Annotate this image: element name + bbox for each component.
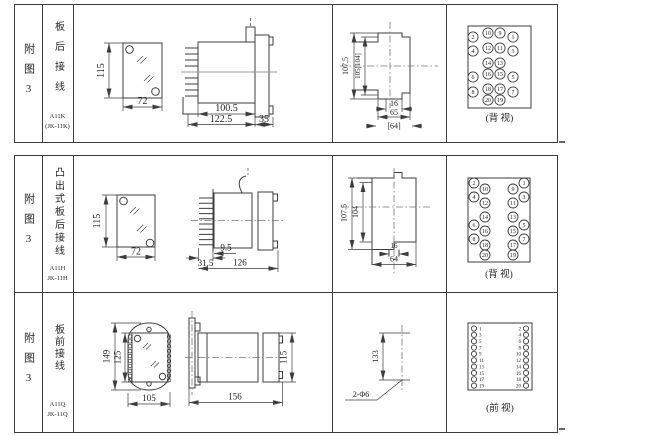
hole-spec-label: 2-Φ6 [353, 390, 370, 399]
dim-width: 105 [142, 393, 156, 403]
row1-front-view: 115 72 [96, 43, 162, 111]
row1-panel-cutout: 107.5 105[104] 16 65 [64] [332, 4, 446, 143]
svg-text:9: 9 [479, 353, 482, 358]
dim-inner-height: 104 [351, 206, 360, 218]
dim-height: 115 [279, 350, 289, 364]
svg-text:1: 1 [512, 35, 515, 41]
svg-text:20: 20 [516, 384, 522, 389]
model-cell-row1: A11K (JK-11K) [42, 112, 73, 132]
hatch-mark [143, 343, 159, 368]
wiring-type-label: 凸出式板后接线 [53, 167, 63, 258]
figure-label: 附图3 [23, 43, 34, 104]
svg-text:9: 9 [512, 187, 515, 193]
wiring-type-label: 板前接线 [53, 324, 63, 372]
svg-text:12: 12 [485, 46, 491, 52]
dim-slot-width: 16 [390, 99, 398, 108]
scan-artifact [559, 141, 565, 143]
terminal-circles: 2 10 9 1 4 12 11 3 14 13 6 16 15 5 8 18 … [468, 28, 518, 105]
svg-text:18: 18 [482, 243, 488, 249]
svg-text:15: 15 [479, 372, 485, 377]
dim-hole-spacing: 133 [370, 350, 380, 363]
dim-width-alt: [64] [387, 122, 401, 131]
view-label: (背 视) [485, 268, 513, 280]
dim-slot-width: 16 [391, 242, 399, 250]
svg-text:6: 6 [472, 75, 475, 81]
svg-text:8: 8 [473, 237, 476, 243]
figure-cell-row3: 附图3 [14, 292, 42, 433]
row2-terminal-diagram: 2 10 4 12 14 6 16 8 18 20 1 9 3 11 13 5 … [446, 155, 558, 292]
dim-width: 72 [131, 247, 141, 258]
svg-text:16: 16 [485, 72, 491, 78]
row2-panel-cutout: 107.5 104 16 64 [332, 155, 446, 292]
dim-width: 65 [390, 108, 398, 117]
terminal-circles: 2 10 4 12 14 6 16 8 18 20 1 9 3 11 13 5 … [469, 178, 529, 260]
dim-outer-height: 107.5 [341, 57, 350, 75]
svg-text:16: 16 [516, 372, 522, 377]
svg-text:12: 12 [516, 359, 522, 364]
svg-text:11: 11 [510, 201, 516, 207]
row3-drawings: 149 125 105 156 115 [73, 292, 332, 433]
row2-front-view: 115 72 [92, 195, 155, 261]
svg-text:12: 12 [482, 201, 488, 207]
model-code-alt: JK-11Q [42, 410, 73, 420]
wiring-type-cell-row2: 凸出式板后接线 [42, 160, 73, 265]
dim-total-length: 156 [228, 392, 242, 402]
svg-text:19: 19 [479, 384, 485, 389]
hatch-mark [137, 56, 154, 83]
hatch-mark [130, 207, 147, 233]
svg-text:6: 6 [519, 340, 522, 345]
dim-total-length: 126 [233, 258, 247, 268]
dim-inner-height: 105[104] [354, 53, 362, 79]
svg-text:19: 19 [510, 253, 516, 259]
model-code: A11H [42, 264, 73, 274]
model-code-alt: (JK-11K) [42, 122, 73, 132]
svg-text:2: 2 [472, 35, 475, 41]
scan-artifact [559, 428, 565, 430]
model-cell-row2: A11H JK-11H [42, 264, 73, 284]
svg-text:15: 15 [497, 72, 503, 78]
row1-side-view: 100.5 122.5 35 [181, 18, 277, 127]
dim-inner-height: 125 [113, 350, 123, 364]
svg-text:10: 10 [482, 187, 488, 193]
dim-total-length: 122.5 [210, 114, 233, 125]
svg-text:2: 2 [473, 181, 476, 187]
model-cell-row3: A11Q JK-11Q [42, 400, 73, 420]
terminal-screws [128, 335, 170, 382]
row2-side-view: 31.5 9.5 126 [186, 168, 283, 272]
row1-terminal-diagram: 2 10 9 1 4 12 11 3 14 13 6 16 15 5 8 18 … [446, 4, 558, 143]
figure-cell-row1: 附图3 [14, 4, 42, 143]
svg-text:8: 8 [519, 346, 522, 351]
svg-text:4: 4 [472, 49, 475, 55]
svg-text:6: 6 [473, 223, 476, 229]
svg-text:15: 15 [510, 229, 516, 235]
svg-text:9: 9 [499, 31, 502, 37]
svg-text:14: 14 [485, 61, 491, 67]
model-code-alt: JK-11H [42, 274, 73, 284]
row3-drilling-plan: 133 2-Φ6 [332, 292, 446, 433]
row1-drawings: 115 72 100.5 122.5 35 [73, 4, 332, 143]
svg-text:10: 10 [485, 31, 491, 37]
row3-front-view: 149 125 105 [102, 323, 171, 407]
svg-text:13: 13 [479, 365, 485, 370]
svg-text:13: 13 [510, 215, 516, 221]
svg-text:1: 1 [479, 327, 482, 332]
svg-text:19: 19 [497, 98, 503, 104]
svg-text:3: 3 [523, 195, 526, 201]
dim-height: 115 [96, 63, 107, 78]
svg-text:7: 7 [479, 346, 482, 351]
wiring-type-label: 板后接线 [53, 21, 63, 101]
dim-outer-height: 107.5 [340, 204, 349, 222]
svg-text:7: 7 [523, 237, 526, 243]
row3-side-view: 156 115 [185, 311, 296, 406]
svg-text:18: 18 [516, 378, 522, 383]
dim-width: 64 [390, 255, 398, 264]
svg-text:8: 8 [472, 90, 475, 96]
svg-text:5: 5 [523, 223, 526, 229]
figure-label: 附图3 [23, 332, 34, 393]
wiring-type-cell-row1: 板后接线 [42, 12, 73, 110]
dim-body-length: 100.5 [215, 103, 238, 114]
svg-text:13: 13 [497, 61, 503, 67]
svg-text:3: 3 [479, 334, 482, 339]
figure-label: 附图3 [23, 193, 34, 254]
svg-text:10: 10 [516, 353, 522, 358]
svg-text:20: 20 [482, 253, 488, 259]
svg-text:5: 5 [512, 75, 515, 81]
svg-text:7: 7 [512, 90, 515, 96]
terminal-circles: 1 2 3 4 5 6 7 8 9 10 11 12 13 14 15 16 1… [471, 326, 528, 390]
svg-text:20: 20 [485, 98, 491, 104]
svg-text:14: 14 [482, 215, 488, 221]
dim-protrusion: 31.5 [198, 258, 214, 268]
figure-cell-row2: 附图3 [14, 155, 42, 292]
dim-height: 115 [92, 214, 103, 229]
wiring-type-cell-row3: 板前接线 [42, 300, 73, 395]
svg-text:1: 1 [523, 181, 526, 187]
svg-text:3: 3 [512, 49, 515, 55]
row2-drawings: 115 72 31.5 9.5 126 [73, 155, 332, 292]
row3-terminal-diagram: 1 2 3 4 5 6 7 8 9 10 11 12 13 14 15 16 1… [446, 292, 558, 433]
svg-text:4: 4 [519, 334, 522, 339]
model-code: A11K [42, 112, 73, 122]
scanned-diagram-page: 附图3 板后接线 A11K (JK-11K) 115 72 [0, 0, 645, 435]
svg-text:17: 17 [510, 243, 516, 249]
svg-text:14: 14 [516, 365, 522, 370]
svg-text:11: 11 [479, 359, 484, 364]
svg-text:4: 4 [473, 195, 476, 201]
svg-text:16: 16 [482, 229, 488, 235]
model-code: A11Q [42, 400, 73, 410]
dim-gap: 9.5 [220, 243, 232, 253]
svg-text:17: 17 [479, 378, 485, 383]
dim-width: 72 [138, 96, 148, 107]
view-label: (背 视) [486, 112, 514, 124]
svg-text:2: 2 [519, 327, 522, 332]
svg-text:17: 17 [497, 87, 503, 93]
view-label: (前 视) [486, 402, 514, 414]
svg-text:18: 18 [485, 87, 491, 93]
svg-text:5: 5 [479, 340, 482, 345]
dim-outer-height: 149 [102, 349, 112, 363]
svg-text:11: 11 [497, 46, 503, 52]
dim-flange: 35 [259, 114, 269, 125]
